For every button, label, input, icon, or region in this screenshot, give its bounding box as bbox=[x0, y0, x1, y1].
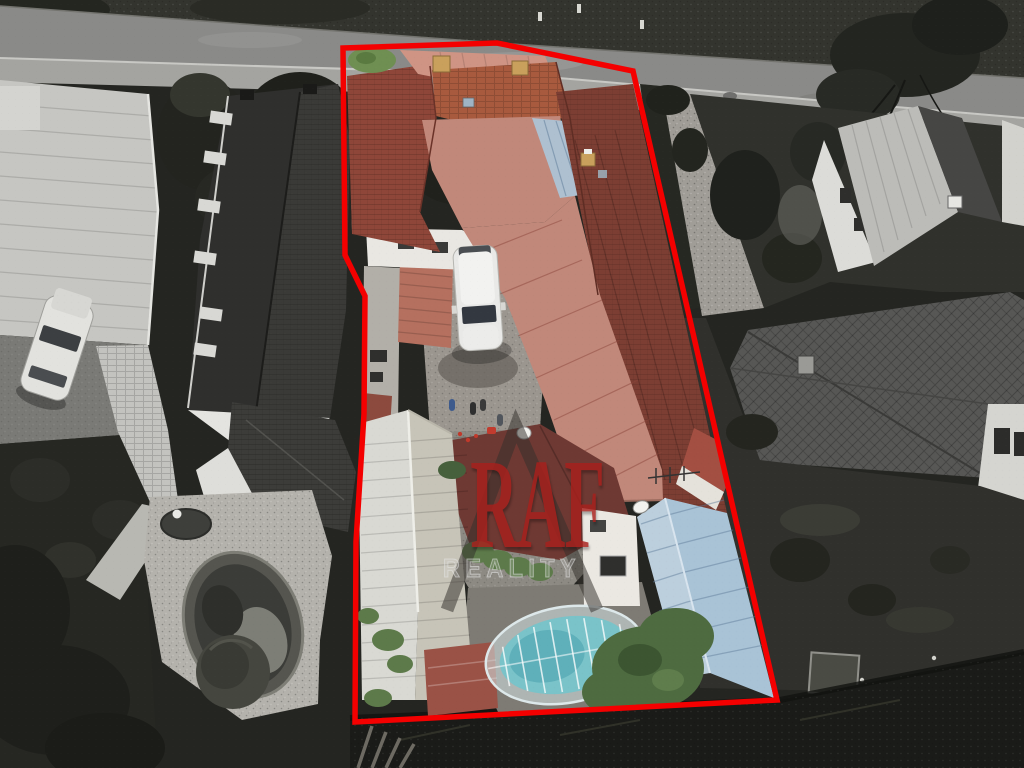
grain-overlay bbox=[0, 0, 1024, 768]
aerial-photo: RAF REALITY bbox=[0, 0, 1024, 768]
aerial-photo-canvas bbox=[0, 0, 1024, 768]
